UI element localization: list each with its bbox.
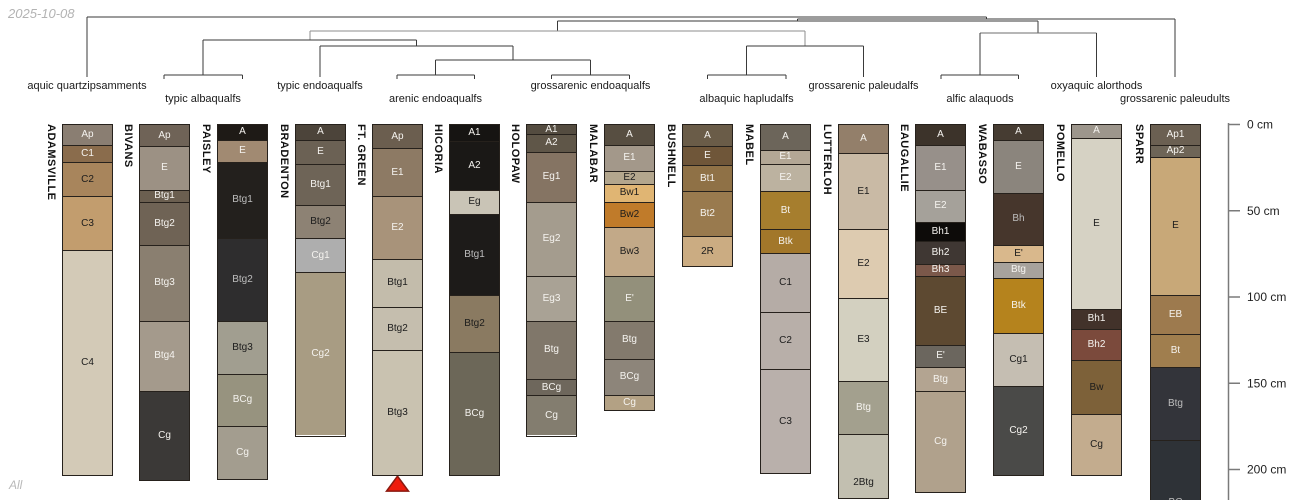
horizon-label: Btg2 <box>373 324 422 334</box>
horizon: 2Btg <box>839 435 888 497</box>
horizon-label: A <box>1072 126 1121 136</box>
series-name-label: BUSHNELL <box>665 124 677 188</box>
horizon-label: C3 <box>63 219 112 229</box>
horizon: Btg4 <box>140 322 189 393</box>
horizon-label: Btg1 <box>373 278 422 288</box>
horizon: E1 <box>761 151 810 165</box>
horizon: Bt1 <box>683 166 732 192</box>
horizon: BCg <box>218 375 267 427</box>
horizon-label: E1 <box>916 163 965 173</box>
horizon: A2 <box>450 142 499 190</box>
horizon-label: C1 <box>761 278 810 288</box>
horizon: A <box>761 125 810 151</box>
horizon-label: Btg3 <box>373 408 422 418</box>
horizon: Btg2 <box>296 206 345 239</box>
horizon-label: BE <box>916 306 965 316</box>
horizon: C1 <box>63 146 112 163</box>
horizon: Bw <box>1072 361 1121 414</box>
horizon: A <box>916 125 965 146</box>
horizon-label: Btg3 <box>218 343 267 353</box>
horizon-label: Eg <box>450 197 499 207</box>
horizon-label: Ap <box>63 130 112 140</box>
horizon-label: A <box>761 132 810 142</box>
horizon: EB <box>1151 296 1200 336</box>
horizon: E <box>218 141 267 163</box>
horizon-label: EB <box>1151 310 1200 320</box>
horizon: Cg <box>916 392 965 492</box>
series-name-label: BIVANS <box>122 124 134 168</box>
horizon: A <box>605 125 654 146</box>
horizon-label: Btg <box>994 265 1043 275</box>
horizon-label: A2 <box>527 138 576 148</box>
horizon: Btg2 <box>218 239 267 322</box>
horizon-label: BCg <box>450 409 499 419</box>
horizon-label: Bw2 <box>605 210 654 220</box>
horizon-label: Btg2 <box>218 275 267 285</box>
series-name-label: FT. GREEN <box>355 124 367 186</box>
horizon: E' <box>605 277 654 322</box>
horizon-label: Bh1 <box>916 227 965 237</box>
horizon-label: E2 <box>373 223 422 233</box>
profile-column: ApEBtg1Btg2Btg3Btg4Cg <box>139 124 190 481</box>
horizon-label: E1 <box>839 187 888 197</box>
series-name-label: EAUGALLIE <box>898 124 910 192</box>
horizon: Bh2 <box>1072 330 1121 361</box>
horizon-label: Btg1 <box>296 180 345 190</box>
horizon: Eg2 <box>527 203 576 277</box>
horizon: A2 <box>527 135 576 152</box>
horizon: E1 <box>373 149 422 197</box>
horizon-label: Btg1 <box>450 250 499 260</box>
horizon: E2 <box>605 172 654 186</box>
horizon: Eg <box>450 191 499 215</box>
horizon: Btg3 <box>140 246 189 322</box>
horizon: Bh2 <box>916 242 965 264</box>
horizon: Bw3 <box>605 228 654 276</box>
horizon-label: Ap2 <box>1151 146 1200 156</box>
horizon-label: E3 <box>839 335 888 345</box>
horizon-label: E <box>1151 221 1200 231</box>
horizon: BE <box>916 277 965 346</box>
horizon: Btg <box>916 368 965 392</box>
horizon: E2 <box>373 197 422 259</box>
horizon-label: C2 <box>63 175 112 185</box>
series-name-label: LUTTERLOH <box>821 124 833 195</box>
horizon-label: BCg <box>605 372 654 382</box>
profile-column: ApC1C2C3C4 <box>62 124 113 476</box>
horizon: Btg <box>605 322 654 360</box>
horizon-label: Bt1 <box>683 174 732 184</box>
horizon: E1 <box>605 146 654 172</box>
horizon-label: Cg <box>218 448 267 458</box>
horizon-label: A <box>683 131 732 141</box>
horizon-label: E <box>683 151 732 161</box>
series-name-label: BRADENTON <box>278 124 290 199</box>
horizon: Cg1 <box>296 239 345 274</box>
horizon-label: Bh1 <box>1072 314 1121 324</box>
series-name-label: ADAMSVILLE <box>45 124 57 201</box>
horizon-label: Bw1 <box>605 188 654 198</box>
horizon: E <box>683 147 732 166</box>
horizon-label: Cg <box>916 437 965 447</box>
series-name-label: HOLOPAW <box>509 124 521 184</box>
horizon-label: Btg <box>1151 399 1200 409</box>
horizon-label: Btg <box>605 335 654 345</box>
horizon: A <box>994 125 1043 141</box>
horizon-label: A1 <box>527 125 576 135</box>
horizon-label: Btg <box>916 375 965 385</box>
horizon-label: Bh <box>994 214 1043 224</box>
horizon-label: C1 <box>63 149 112 159</box>
horizon-label: BCg <box>218 395 267 405</box>
horizon: E2 <box>916 191 965 224</box>
horizon: Btg2 <box>140 203 189 246</box>
horizon: BCg <box>527 380 576 396</box>
profile-column: AEBt1Bt22R <box>682 124 733 267</box>
horizon: Bw1 <box>605 185 654 202</box>
horizon-label: Btg <box>527 345 576 355</box>
horizon: A <box>1072 125 1121 139</box>
horizon: Cg2 <box>994 387 1043 475</box>
horizon-label: E' <box>916 351 965 361</box>
horizon-label: A <box>605 130 654 140</box>
horizon: Bh3 <box>916 265 965 277</box>
horizon-label: A <box>296 127 345 137</box>
horizon-label: E <box>218 146 267 156</box>
horizon: C1 <box>761 254 810 313</box>
horizon: A <box>683 125 732 147</box>
horizon: Ap <box>373 125 422 149</box>
profile-column: AE1E2Bw1Bw2Bw3E'BtgBCgCg <box>604 124 655 411</box>
horizon-label: Bt <box>761 206 810 216</box>
horizon: Btg2 <box>450 296 499 353</box>
horizon-label: E2 <box>916 201 965 211</box>
horizon: Btg <box>1151 368 1200 440</box>
horizon-label: A1 <box>450 128 499 138</box>
horizon-label: Cg <box>140 431 189 441</box>
horizon: E' <box>994 246 1043 263</box>
horizon-label: Cg <box>1072 440 1121 450</box>
horizon: A <box>296 125 345 141</box>
horizon: Btg <box>994 263 1043 279</box>
horizon: E2 <box>839 230 888 299</box>
footer-label: All <box>9 478 22 492</box>
horizon-label: E' <box>605 294 654 304</box>
horizon: Btg1 <box>140 191 189 203</box>
horizon: Cg <box>140 392 189 480</box>
profile-column: AE1E2Bh1Bh2Bh3BEE'BtgCg <box>915 124 966 493</box>
horizon: Bw2 <box>605 203 654 229</box>
horizon-label: E1 <box>605 153 654 163</box>
horizon-label: E2 <box>839 259 888 269</box>
series-name-label: MABEL <box>743 124 755 166</box>
horizon-label: Cg2 <box>296 349 345 359</box>
horizon: BCg <box>450 353 499 475</box>
horizon: Cg <box>218 427 267 479</box>
series-name-label: MALABAR <box>587 124 599 183</box>
horizon-label: Eg1 <box>527 172 576 182</box>
horizon-label: Bt <box>1151 346 1200 356</box>
horizon: Ap1 <box>1151 125 1200 146</box>
horizon: Ap2 <box>1151 146 1200 158</box>
horizon: Btg2 <box>373 308 422 351</box>
horizon-label: Ap1 <box>1151 130 1200 140</box>
horizon-label: A <box>218 127 267 137</box>
horizon-label: A <box>916 130 965 140</box>
horizon: Btg1 <box>296 165 345 206</box>
horizon: Eg1 <box>527 153 576 203</box>
horizon-label: Bh2 <box>916 248 965 258</box>
profile-column: AEBtg1Btg2Cg1Cg2 <box>295 124 346 437</box>
horizon: E <box>140 147 189 190</box>
horizon: Ap <box>140 125 189 147</box>
horizon: Btg1 <box>450 215 499 296</box>
horizon: E1 <box>916 146 965 191</box>
horizon-label: Btk <box>761 237 810 247</box>
profile-column: A1A2EgBtg1Btg2BCg <box>449 124 500 476</box>
horizon-label: Eg2 <box>527 234 576 244</box>
horizon-label: Btg <box>839 403 888 413</box>
horizon: Btk <box>761 230 810 254</box>
horizon-label: Btg2 <box>450 319 499 329</box>
horizon: C3 <box>63 197 112 250</box>
horizon-label: Btg2 <box>296 217 345 227</box>
series-name-label: SPARR <box>1133 124 1145 164</box>
horizon: E2 <box>761 165 810 193</box>
horizon-label: Eg3 <box>527 294 576 304</box>
horizon: Cg <box>1072 415 1121 475</box>
horizon: C3 <box>761 370 810 474</box>
horizon-label: Bw3 <box>605 247 654 257</box>
horizon: Btg3 <box>218 322 267 375</box>
horizon: A <box>218 125 267 141</box>
horizon: 2R <box>683 237 732 266</box>
horizon-label: C2 <box>761 336 810 346</box>
horizon: BC <box>1151 441 1200 500</box>
profile-column: AEBtg1Btg2Btg3BCgCg <box>217 124 268 480</box>
horizon-label: E2 <box>605 173 654 183</box>
horizon-label: Btg1 <box>140 191 189 201</box>
horizon: Bt <box>761 192 810 230</box>
horizon-label: BCg <box>527 383 576 393</box>
horizon: Cg2 <box>296 273 345 435</box>
horizon: E <box>994 141 1043 194</box>
horizon-label: A <box>994 127 1043 137</box>
horizon: A1 <box>527 125 576 135</box>
horizon-label: Btg4 <box>140 351 189 361</box>
horizon: BCg <box>605 360 654 396</box>
horizon-label: Cg <box>605 398 654 408</box>
horizon: E3 <box>839 299 888 382</box>
horizon: Btg <box>527 322 576 381</box>
horizon-label: C4 <box>63 358 112 368</box>
horizon: Bh <box>994 194 1043 246</box>
horizon-label: Bh3 <box>916 265 965 275</box>
profiles-layer: ADAMSVILLEApC1C2C3C4BIVANSApEBtg1Btg2Btg… <box>0 0 1300 500</box>
horizon: E1 <box>839 154 888 230</box>
horizon-label: Cg2 <box>994 426 1043 436</box>
horizon-label: Cg1 <box>296 251 345 261</box>
horizon-label: E2 <box>761 173 810 183</box>
horizon-label: E' <box>994 249 1043 259</box>
profile-column: AEBh1Bh2BwCg <box>1071 124 1122 476</box>
profile-column: Ap1Ap2EEBBtBtgBC <box>1150 124 1201 500</box>
horizon: E' <box>916 346 965 368</box>
profile-column: AE1E2E3Btg2Btg <box>838 124 889 499</box>
horizon: Bh1 <box>1072 310 1121 331</box>
horizon-label: Bw <box>1072 383 1121 393</box>
horizon: A <box>839 125 888 154</box>
horizon: C2 <box>761 313 810 370</box>
series-name-label: PAISLEY <box>200 124 212 174</box>
horizon: Bt2 <box>683 192 732 237</box>
horizon: Btk <box>994 279 1043 334</box>
horizon: E <box>296 141 345 165</box>
horizon: Bt <box>1151 335 1200 368</box>
profile-column: AEBhE'BtgBtkCg1Cg2 <box>993 124 1044 476</box>
horizon: Cg <box>527 396 576 436</box>
horizon-label: Btg2 <box>140 219 189 229</box>
horizon-label: E1 <box>373 168 422 178</box>
horizon-label: E <box>140 163 189 173</box>
horizon: E <box>1151 158 1200 296</box>
horizon-label: C3 <box>761 417 810 427</box>
horizon-label: Ap <box>140 131 189 141</box>
profile-column: A1A2Eg1Eg2Eg3BtgBCgCg <box>526 124 577 437</box>
horizon: Btg1 <box>373 260 422 308</box>
horizon: Cg1 <box>994 334 1043 387</box>
horizon: E <box>1072 139 1121 310</box>
horizon-label: E <box>296 147 345 157</box>
horizon: Eg3 <box>527 277 576 322</box>
horizon-label: A <box>839 134 888 144</box>
horizon-label: Ap <box>373 132 422 142</box>
horizon: Cg <box>605 396 654 410</box>
horizon-label: Btg3 <box>140 278 189 288</box>
series-name-label: HICORIA <box>432 124 444 174</box>
horizon: C4 <box>63 251 112 475</box>
horizon-label: Bt2 <box>683 209 732 219</box>
horizon-label: Btk <box>994 301 1043 311</box>
series-name-label: WABASSO <box>976 124 988 184</box>
horizon-label: Cg <box>527 411 576 421</box>
horizon-label: 2R <box>683 247 732 257</box>
horizon-label: E <box>994 162 1043 172</box>
horizon-label: E1 <box>761 152 810 162</box>
horizon: Btg <box>839 382 888 435</box>
horizon-label: A2 <box>450 161 499 171</box>
horizon-label: Btg1 <box>218 195 267 205</box>
horizon-label: Bh2 <box>1072 340 1121 350</box>
horizon-label: Cg1 <box>994 355 1043 365</box>
profile-column: AE1E2BtBtkC1C2C3 <box>760 124 811 474</box>
horizon: Btg3 <box>373 351 422 475</box>
series-name-label: POMELLO <box>1054 124 1066 182</box>
horizon: Ap <box>63 125 112 146</box>
horizon-label: 2Btg <box>839 478 888 488</box>
horizon: Bh1 <box>916 223 965 242</box>
horizon-label: E <box>1072 219 1121 229</box>
horizon: Btg1 <box>218 163 267 239</box>
profile-column: ApE1E2Btg1Btg2Btg3 <box>372 124 423 476</box>
soil-profile-figure: 2025-10-08 aquic quartzipsammentstypic a… <box>0 0 1300 500</box>
horizon: A1 <box>450 125 499 142</box>
horizon: C2 <box>63 163 112 198</box>
